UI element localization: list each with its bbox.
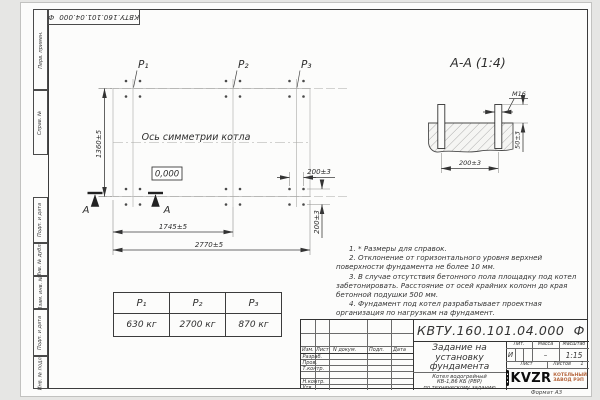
section-letter-left: А xyxy=(82,205,90,216)
loads-table: P₁ P₂ P₃ 630 кг 2700 кг 870 кг xyxy=(113,292,282,337)
lit-value: И xyxy=(506,351,515,359)
load-point-label-p3: P₃ xyxy=(301,59,312,71)
technical-notes: 1. * Размеры для справок. 2. Отклонение … xyxy=(336,244,589,318)
rev-header-data: Дата xyxy=(393,347,406,353)
dim-bolt-spacing-v: 200±3 xyxy=(313,210,321,234)
sign-tkontr: Т.контр. xyxy=(303,366,325,372)
mass-header: Масса xyxy=(532,342,559,347)
section-letter-right: А xyxy=(163,205,171,216)
sheets-header: Листов xyxy=(548,362,576,367)
kvzr-emblem-icon xyxy=(506,370,509,386)
rev-header-ndokum: N докум. xyxy=(333,347,356,353)
drawing-sheet-page: Перв. примен. Справ. № Подп. и дата Инв.… xyxy=(0,0,600,400)
sheets-value: 1 xyxy=(576,362,588,367)
plan-view: P₁ P₂ P₃ Ось симметрии котла 0,000 1360±… xyxy=(82,59,348,255)
level-mark-value: 0,000 xyxy=(155,170,179,180)
dim-protrusion: 50±3 xyxy=(514,131,522,149)
sheet-header: Лист xyxy=(506,362,547,367)
rev-header-izm: Изм. xyxy=(302,347,314,353)
load-point-label-p1: P₁ xyxy=(138,59,149,71)
company-logo-block: KVZR КОТЕЛЬНЫЙ ЗАВОД РЭП xyxy=(506,368,587,388)
loads-table-header-row: P₁ P₂ P₃ xyxy=(114,293,282,314)
rev-header-podp: Подп. xyxy=(369,347,384,353)
note-1: 1. * Размеры для справок. xyxy=(336,244,589,253)
dim-width-inner: 1745±5 xyxy=(159,223,188,231)
drawing-title-line2: установку xyxy=(413,353,506,363)
doc-number: КВТУ.160.101.04.000 Ф xyxy=(413,323,589,338)
company-name-line2: ЗАВОД РЭП xyxy=(553,378,587,383)
mass-value: – xyxy=(532,351,559,359)
note-3: 3. В случае отсутствия бетонного пола пл… xyxy=(336,272,589,300)
note-2: 2. Отклонение от горизонтального уровня … xyxy=(336,253,589,271)
format-label: Формат А3 xyxy=(505,390,588,396)
rev-header-list: Лист xyxy=(316,347,329,353)
drawing-title-line3: фундамента xyxy=(413,362,506,372)
dim-height: 1360±5 xyxy=(95,129,103,158)
symmetry-axis-label: Ось симметрии котла xyxy=(142,132,251,143)
company-name: КОТЕЛЬНЫЙ ЗАВОД РЭП xyxy=(553,373,587,384)
section-view: А-А (1:4) М16 50±3 200±3 xyxy=(429,55,529,173)
loads-value-p3: 870 кг xyxy=(226,314,282,337)
load-point-label-p2: P₂ xyxy=(238,59,249,71)
loads-header-p1: P₁ xyxy=(114,293,170,314)
dim-width-outer: 2770±5 xyxy=(195,241,224,249)
anchor-bolt-right xyxy=(495,105,502,149)
lit-header: Лит. xyxy=(506,342,532,347)
loads-table-value-row: 630 кг 2700 кг 870 кг xyxy=(114,314,282,337)
sign-utv: Утв. xyxy=(303,385,314,391)
loads-value-p2: 2700 кг xyxy=(170,314,226,337)
thread-label: М16 xyxy=(512,90,526,98)
scale-header: Масштаб xyxy=(559,342,589,347)
loads-value-p1: 630 кг xyxy=(114,314,170,337)
section-view-title: А-А (1:4) xyxy=(449,55,505,70)
drawing-title-line1: Задание на xyxy=(413,343,506,353)
note-4: 4. Фундамент под котел разрабатывает про… xyxy=(336,299,589,317)
anchor-bolt-left xyxy=(438,105,445,149)
scale-value: 1:15 xyxy=(559,351,589,360)
loads-header-p2: P₂ xyxy=(170,293,226,314)
kvzr-logo-text: KVZR xyxy=(511,372,552,385)
dim-bolt-spacing-section: 200±3 xyxy=(459,159,481,167)
product-line3: по техническому заданию xyxy=(413,385,506,391)
dim-bolt-spacing-h: 200±3 xyxy=(307,168,331,176)
loads-header-p3: P₃ xyxy=(226,293,282,314)
